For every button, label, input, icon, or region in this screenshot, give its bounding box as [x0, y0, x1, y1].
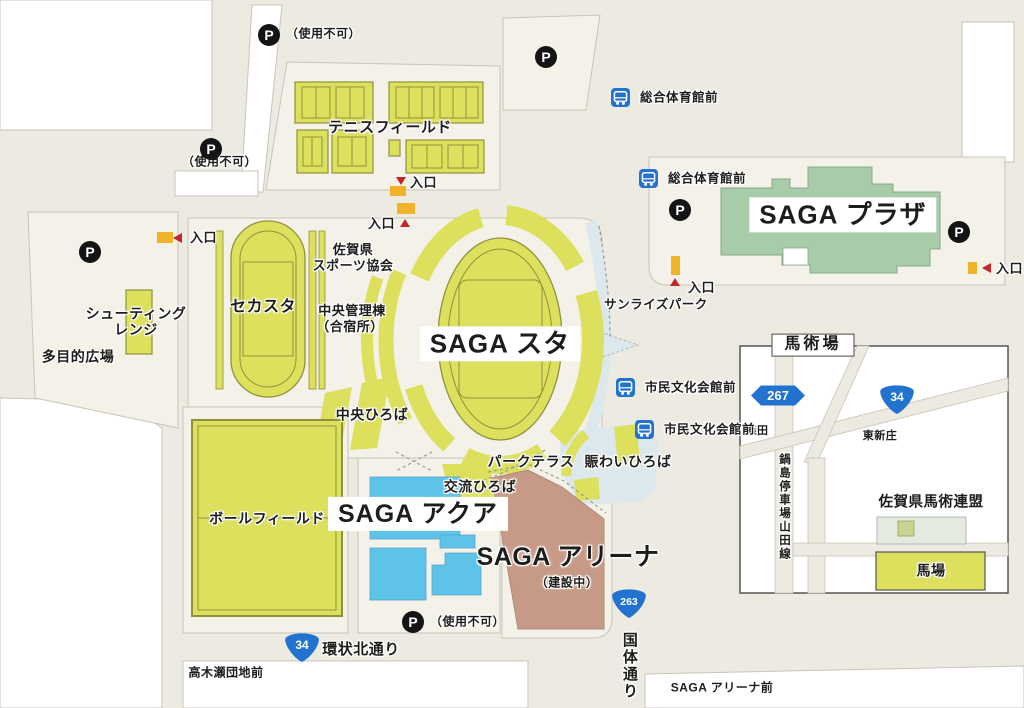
ball-field-shape — [192, 420, 342, 616]
block-northeast — [962, 22, 1014, 162]
north-parking-parcel — [503, 15, 600, 110]
baba-field — [876, 552, 985, 590]
map-canvas — [0, 0, 1024, 708]
federation-building-core — [898, 521, 914, 536]
plaza-courtyard — [783, 248, 808, 265]
multipurpose-parcel — [28, 212, 178, 428]
block-southwest — [0, 398, 162, 708]
federation-building — [877, 517, 966, 544]
shooting-range-field — [126, 290, 152, 354]
equestrian-inset — [740, 346, 1008, 593]
sekasuta-stadium — [216, 221, 325, 397]
block-south-takakise — [183, 661, 528, 708]
block-south-arena — [645, 666, 1024, 708]
deck-green-1 — [614, 424, 640, 464]
sunrise-park-map: テニスフィールドセカスタSAGA スタ佐賀県スポーツ協会中央管理棟（合宿所）中央… — [0, 0, 1024, 708]
block-northwest — [0, 0, 212, 130]
nigiwai-deck — [560, 424, 658, 505]
saga-stadium-track — [438, 238, 562, 440]
parking-lot-northwest — [175, 171, 258, 196]
deck-green-3 — [574, 477, 600, 501]
